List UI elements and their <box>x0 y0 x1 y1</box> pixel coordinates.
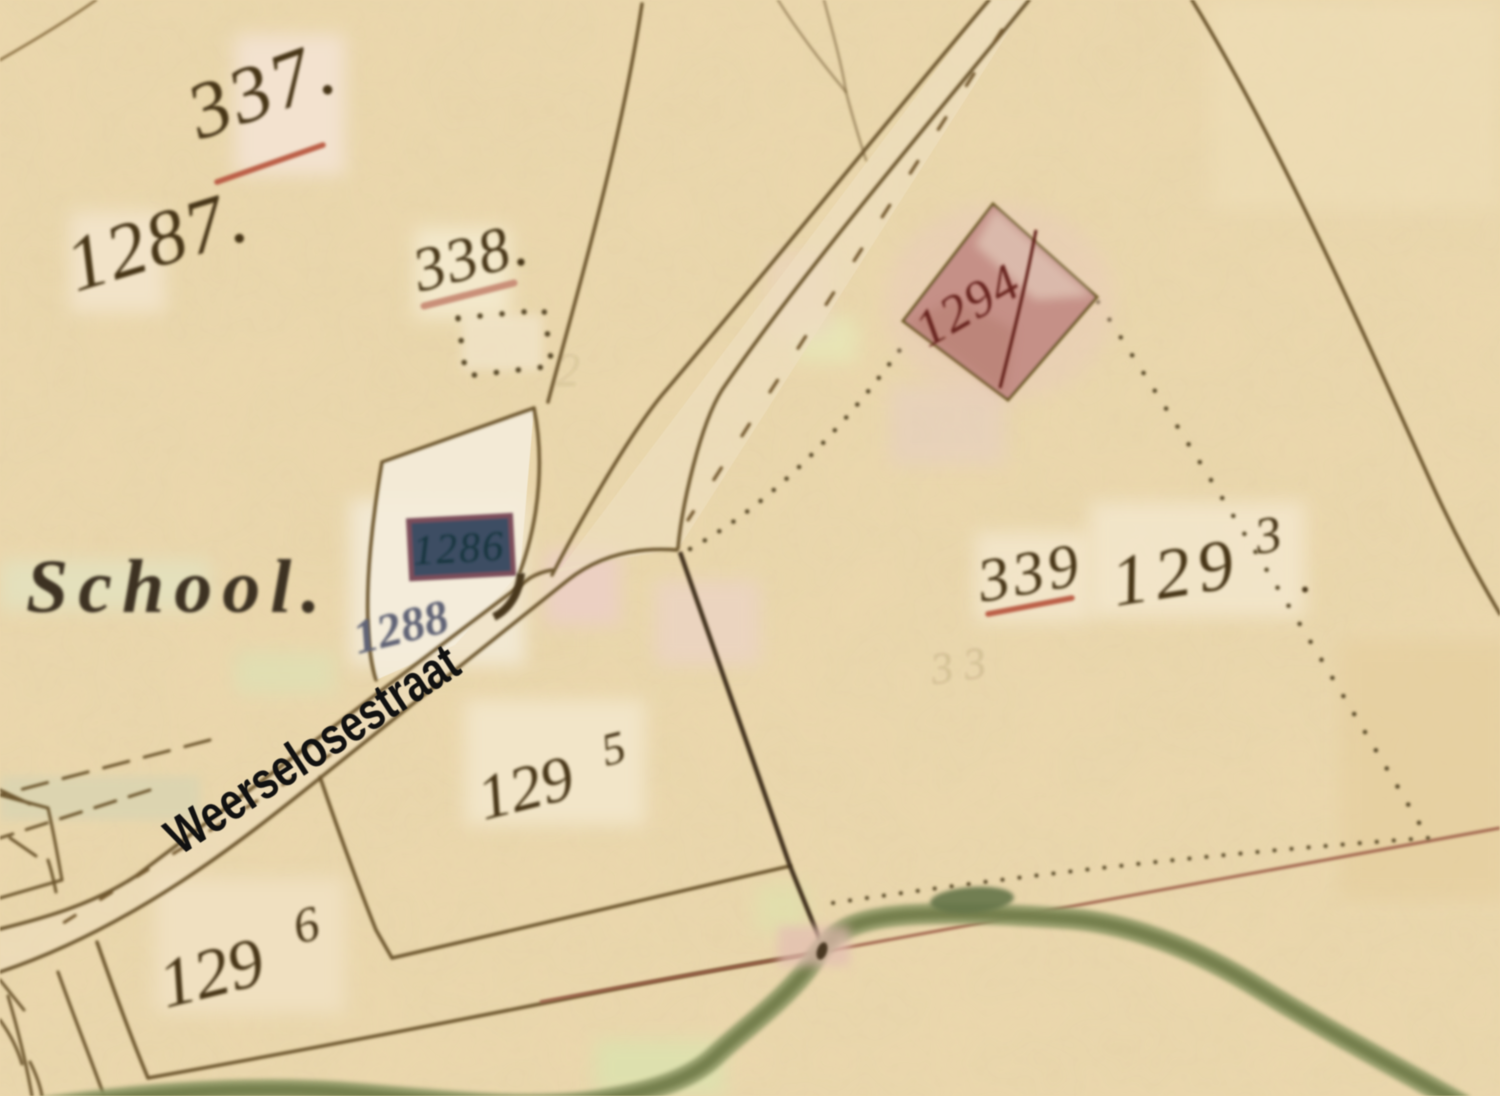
svg-text:School.: School. <box>26 545 330 629</box>
svg-text:2: 2 <box>556 344 580 397</box>
svg-text:.: . <box>1300 547 1313 603</box>
svg-text:1286: 1286 <box>412 524 506 575</box>
svg-text:3 3: 3 3 <box>927 638 989 694</box>
